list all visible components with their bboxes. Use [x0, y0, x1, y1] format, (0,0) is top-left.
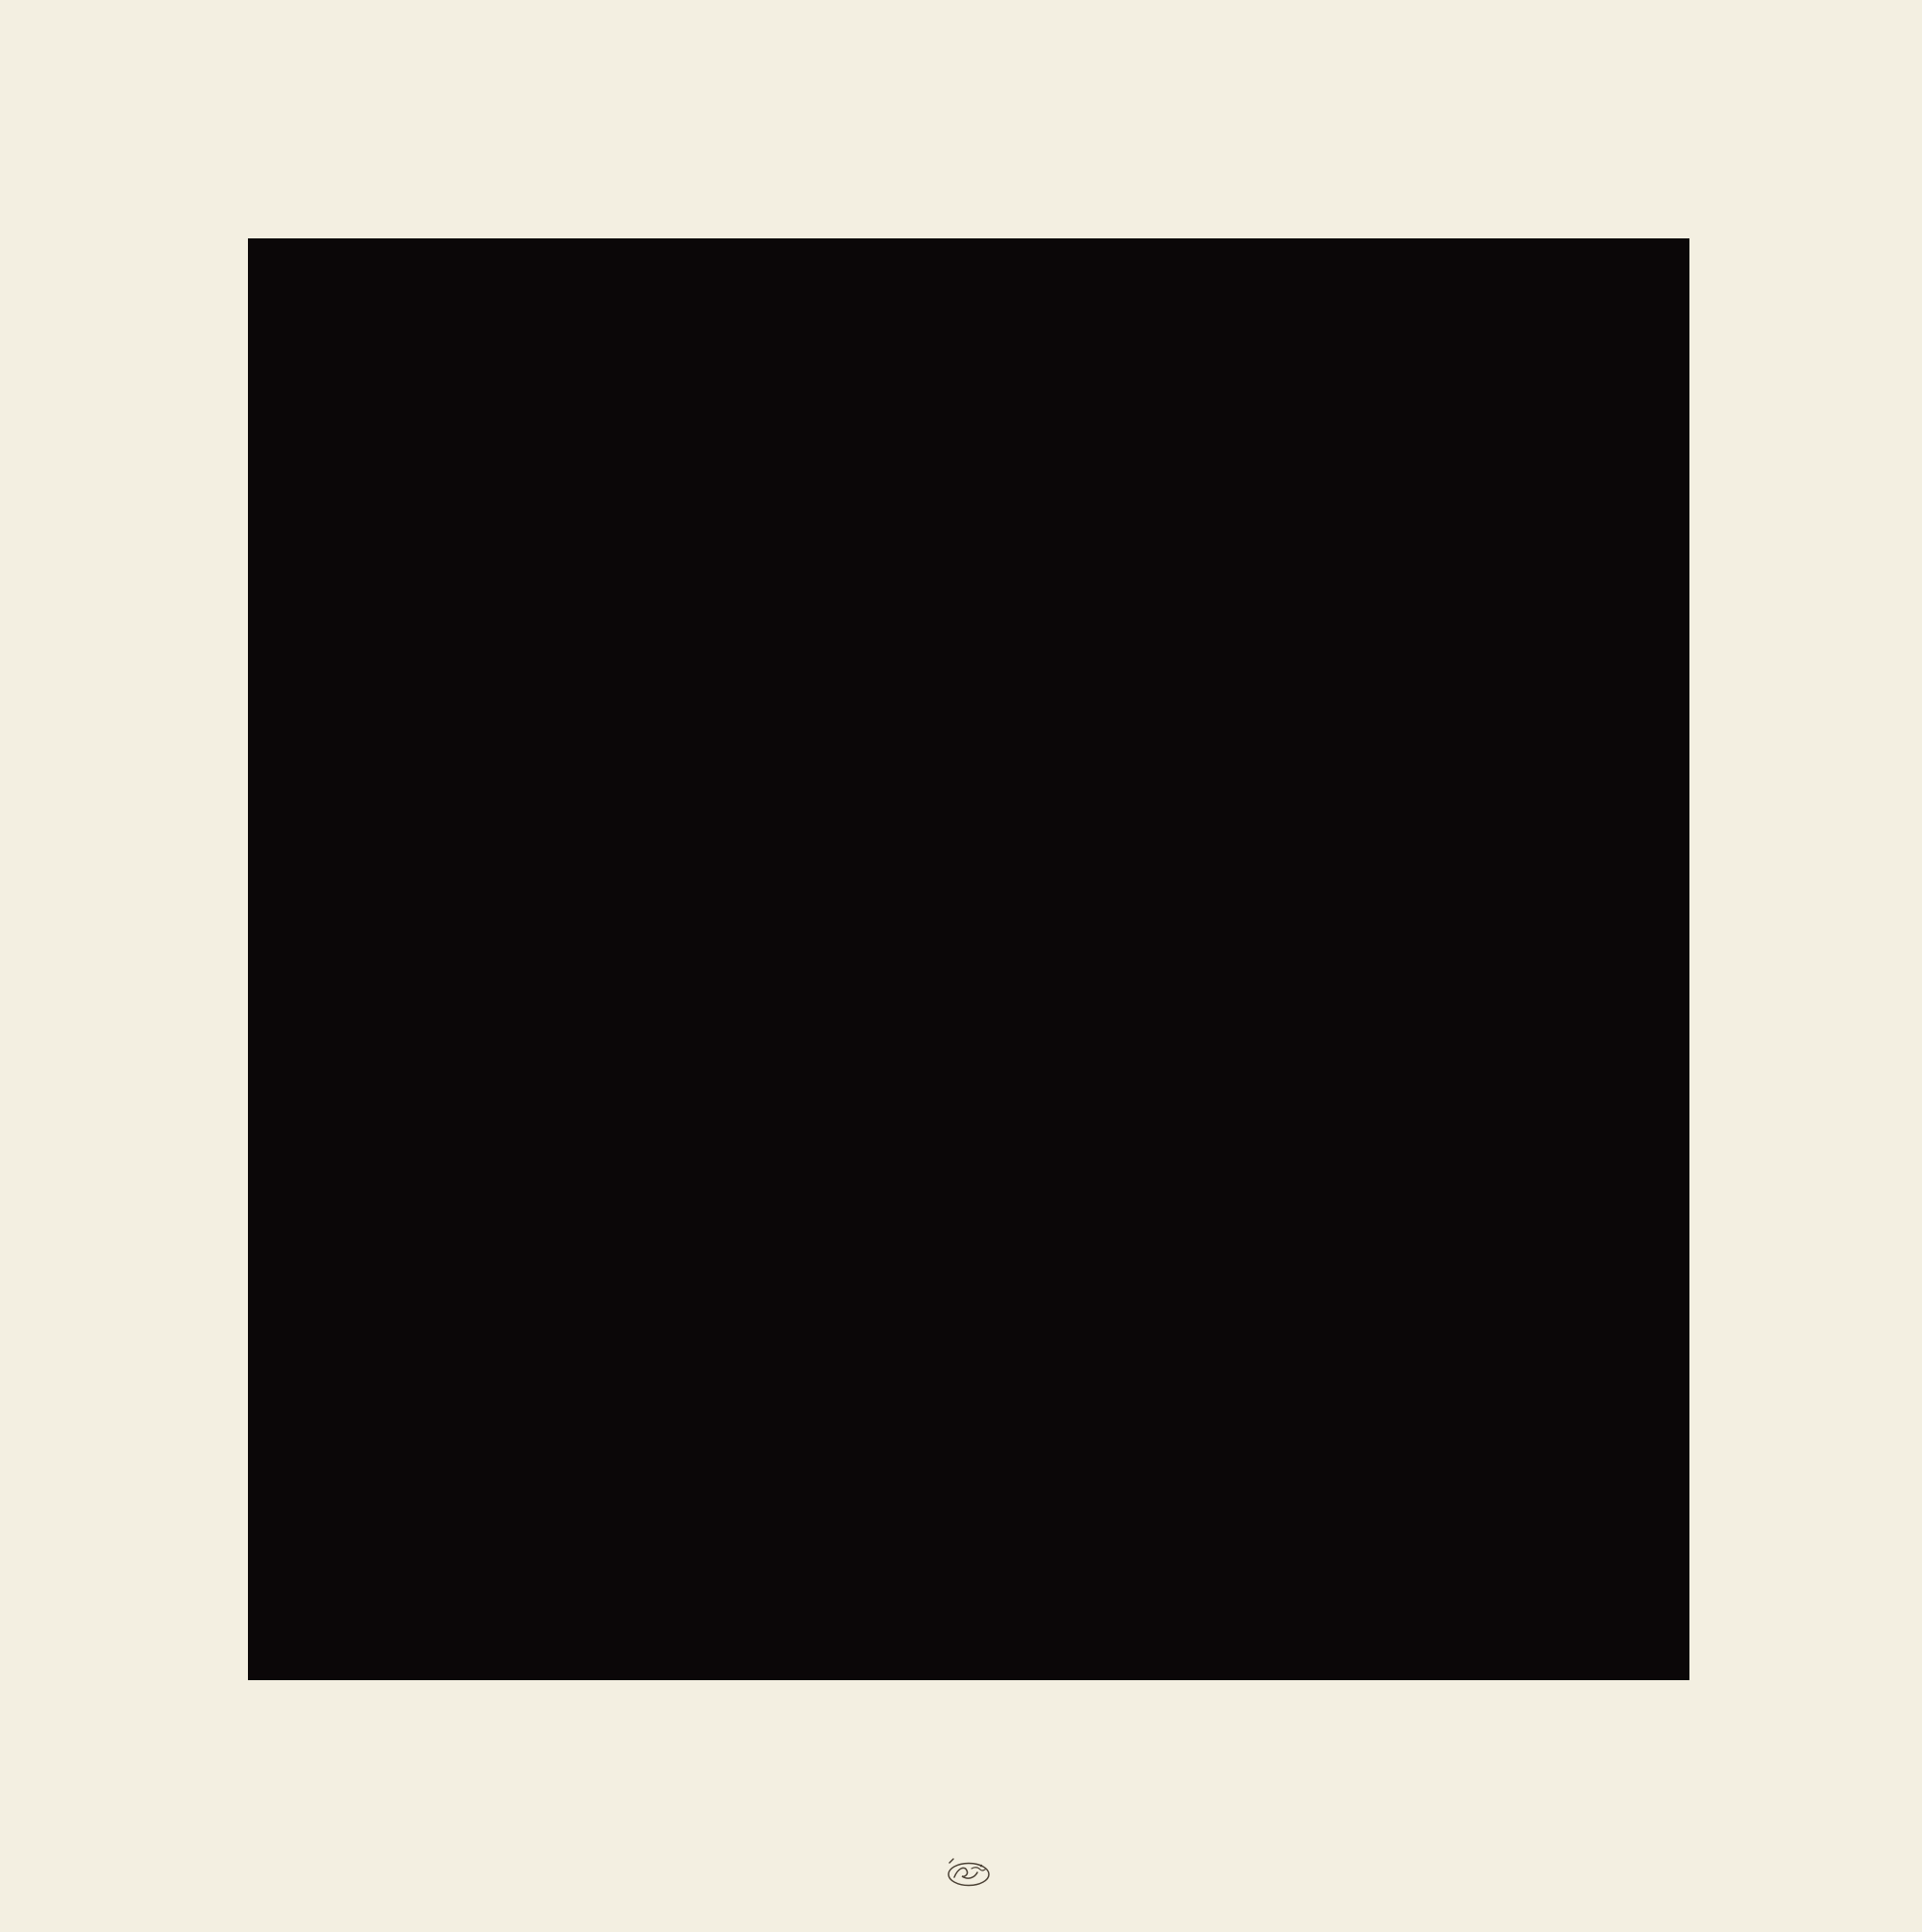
square-kufic-artwork: [0, 0, 1922, 1932]
artwork-frame: [0, 0, 1922, 1932]
black-field: [248, 238, 1689, 1680]
